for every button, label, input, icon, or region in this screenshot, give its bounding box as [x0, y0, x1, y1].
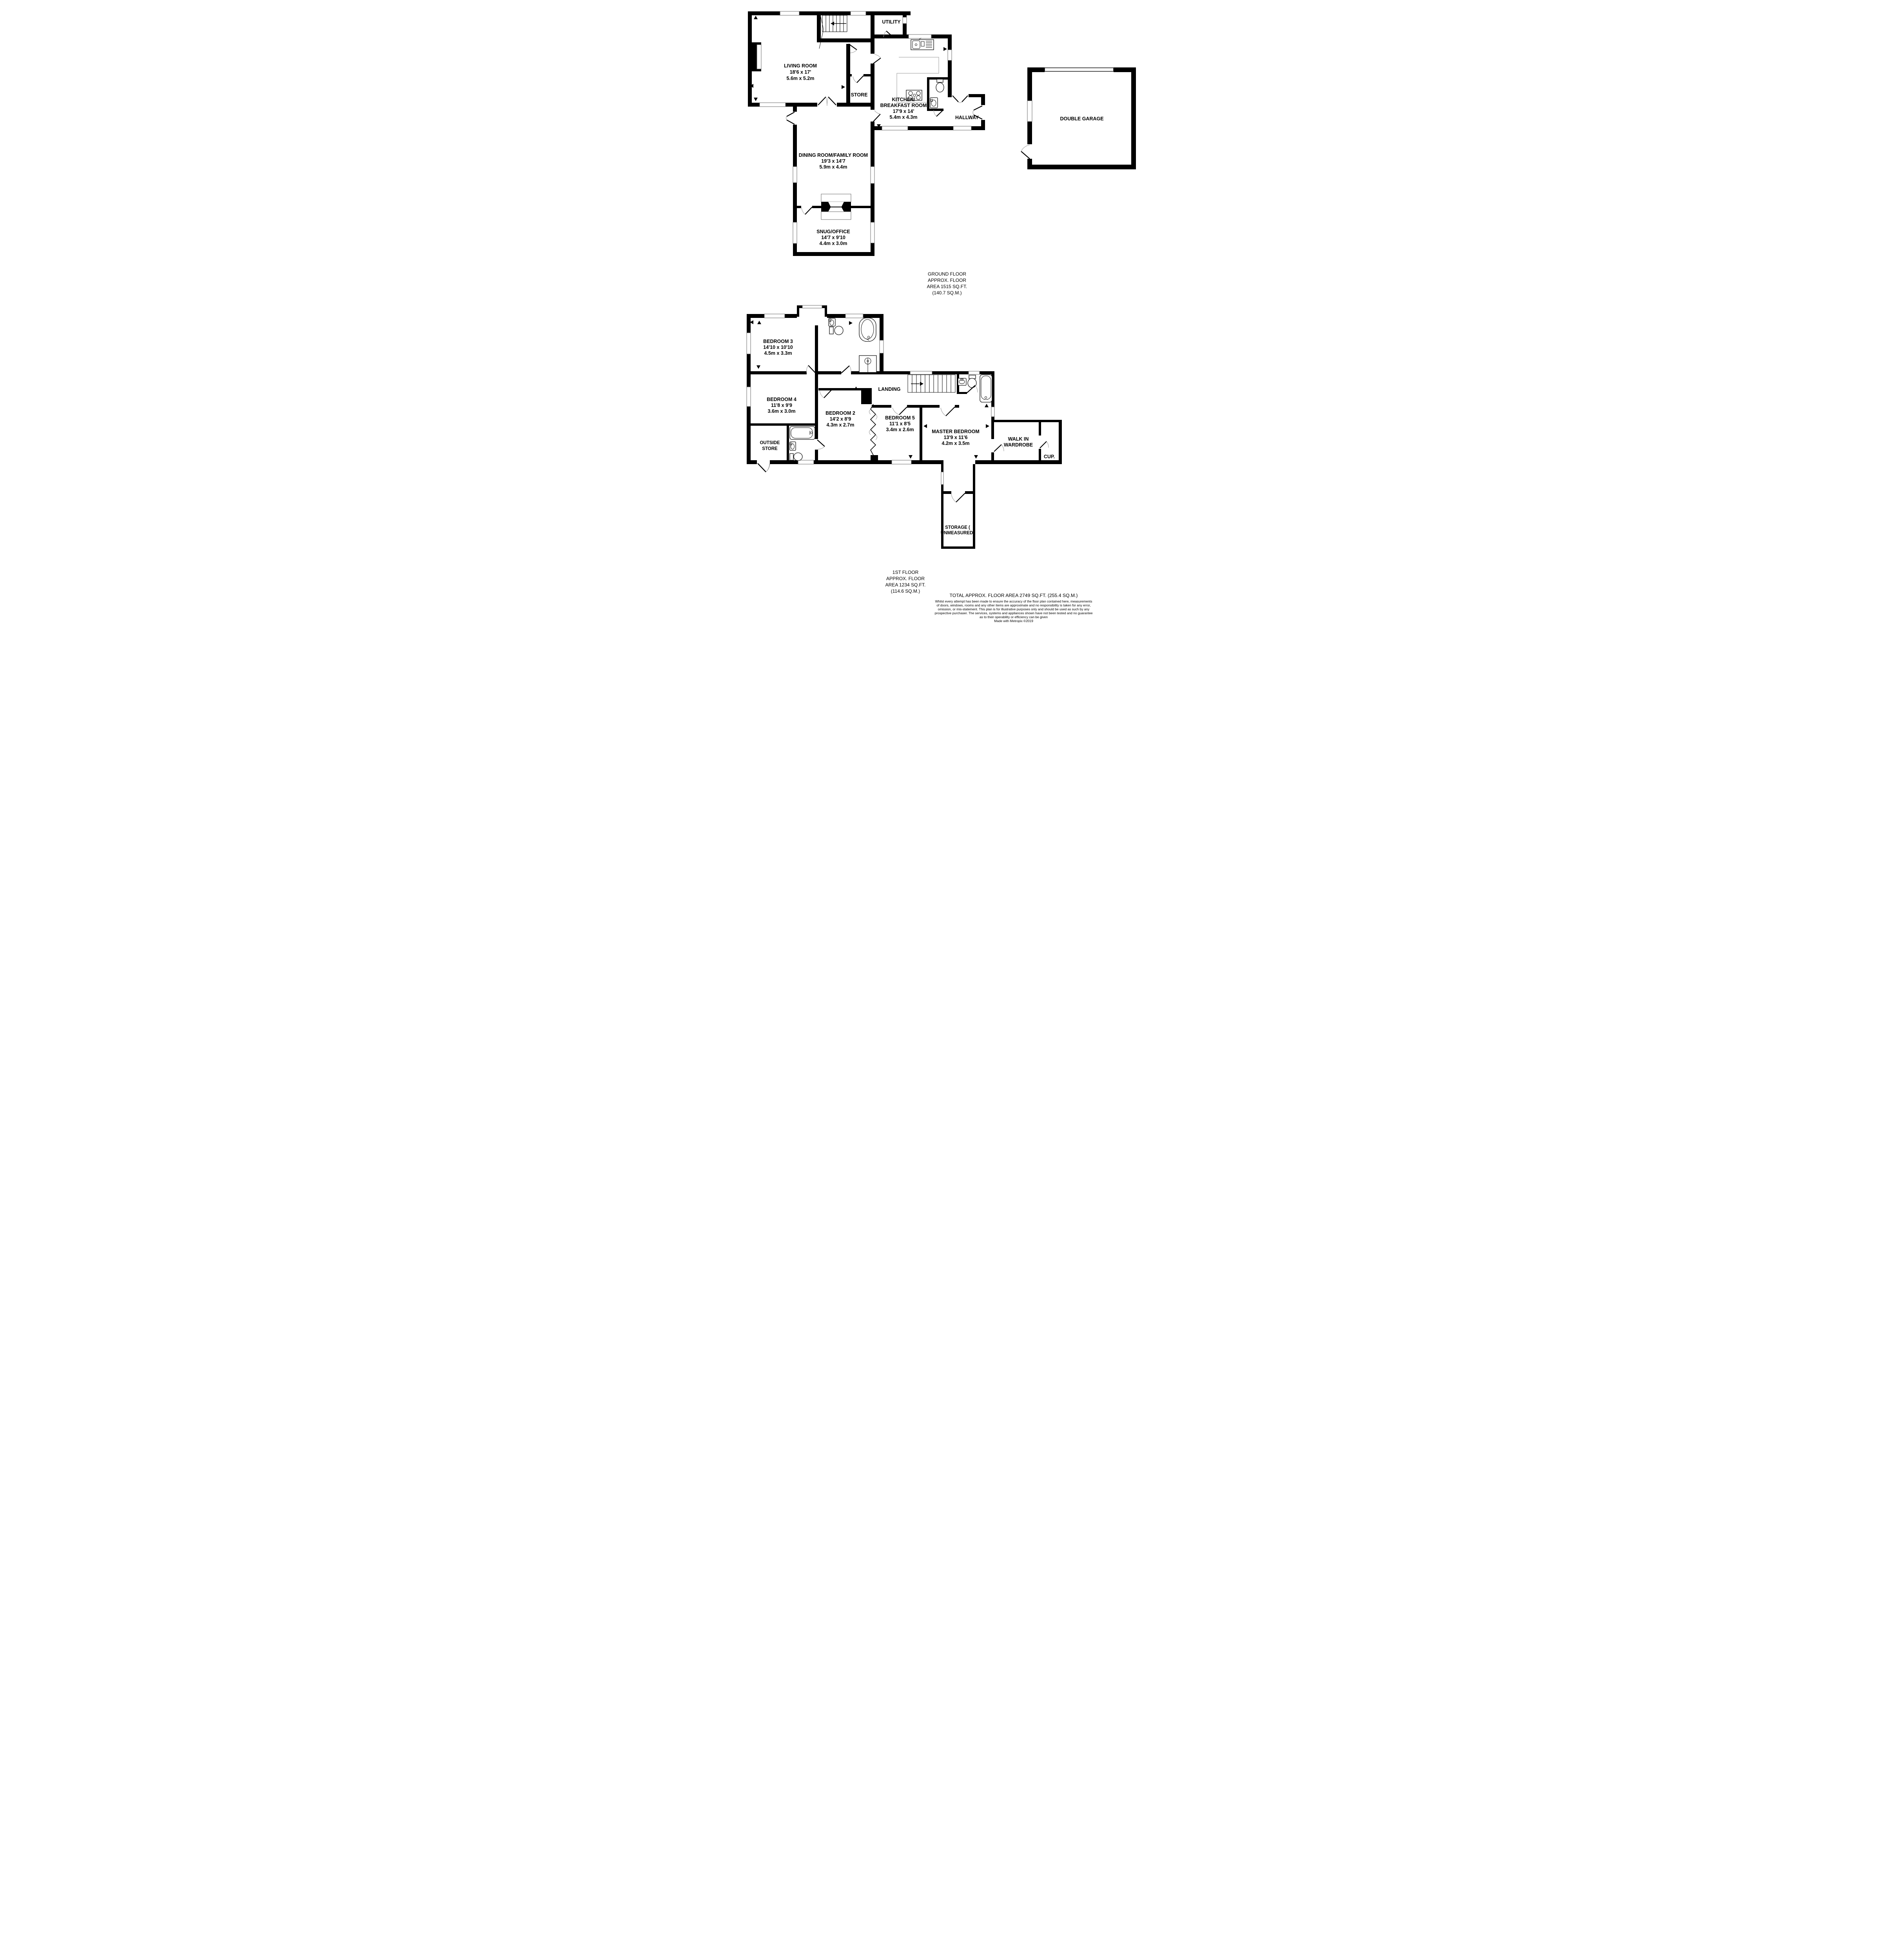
room-dims: 14'7 x 9'10 [821, 235, 845, 240]
window [798, 460, 814, 464]
window [941, 472, 943, 485]
room-label: WALK IN [1008, 436, 1029, 442]
wall [815, 325, 818, 439]
window [871, 167, 874, 183]
room-label: DOUBLE GARAGE [1060, 116, 1103, 122]
wall [816, 371, 841, 374]
wall [975, 460, 1062, 464]
wall [1039, 422, 1041, 436]
window [845, 314, 863, 318]
marker-right-icon [986, 424, 989, 428]
stairs-direction-arrow-icon [920, 382, 923, 386]
window [780, 11, 799, 15]
door [807, 365, 816, 373]
bathtub-icon [859, 318, 876, 341]
room-label: BREAKFAST ROOM [880, 103, 927, 108]
wall [817, 38, 871, 42]
shower-icon [859, 356, 876, 374]
room-label: BEDROOM 2 [825, 410, 855, 416]
wall [907, 405, 940, 408]
window [969, 371, 980, 374]
wall [927, 77, 929, 111]
ground-floor-caption: GROUND FLOOR APPROX. FLOOR AREA 1515 SQ.… [927, 271, 967, 296]
marker-right-icon [943, 47, 947, 51]
room-label: CUP. [1044, 454, 1055, 459]
wall [797, 206, 801, 208]
wall [981, 120, 985, 130]
wall [871, 38, 874, 54]
marker-down-icon [754, 98, 758, 101]
marker-left-icon [923, 424, 927, 428]
wall [846, 74, 852, 76]
toilet-icon [936, 79, 944, 92]
room-dims: 5.9m x 4.4m [820, 164, 847, 170]
room-dims: 17'9 x 14' [893, 109, 914, 114]
marker-down-icon [757, 365, 760, 369]
window [903, 17, 907, 24]
bathtub-icon [790, 426, 815, 439]
wall [991, 452, 994, 464]
room-dims: 4.4m x 3.0m [820, 241, 847, 246]
wall [851, 206, 871, 208]
room-dims: 13'9 x 11'6 [944, 435, 968, 440]
washbasin-icon [930, 98, 938, 108]
caption-line: AREA 1234 SQ.FT. [885, 582, 926, 588]
wall [957, 392, 967, 394]
door [820, 390, 832, 398]
wall [1027, 165, 1136, 169]
room-label: DINING ROOM/FAMILY ROOM [799, 152, 868, 158]
room-dims: 14'10 x 10'10 [763, 345, 793, 350]
wall [815, 450, 818, 460]
window [757, 45, 761, 69]
wall [747, 423, 815, 426]
room-dims: 19'3 x 14'7 [821, 158, 845, 164]
caption-line: APPROX. FLOOR [886, 576, 925, 581]
first-floor-plan: BEDROOM 3 14'10 x 10'10 4.5m x 3.3m BEDR… [747, 305, 1062, 549]
room-dims: 4.2m x 3.5m [942, 441, 970, 446]
garage-plan: DOUBLE GARAGE [1021, 67, 1136, 169]
wall [965, 491, 973, 494]
window [851, 11, 866, 15]
window [760, 103, 786, 107]
caption-line: (140.7 SQ.M.) [932, 290, 962, 296]
disclaimer-line: prospective purchaser. The services, sys… [934, 611, 1092, 615]
room-label: BEDROOM 3 [763, 339, 793, 344]
wall [864, 74, 871, 76]
toilet-icon [790, 453, 802, 461]
caption-line: (114.6 SQ.M.) [891, 588, 920, 594]
caption-line: AREA 1515 SQ.FT. [927, 284, 967, 289]
door [841, 366, 851, 373]
window [802, 305, 822, 308]
room-dims: 3.6m x 3.0m [768, 408, 796, 414]
window [991, 407, 994, 417]
wall [973, 464, 975, 549]
floor-plan-svg: LIVING ROOM 18'6 x 17' 5.6m x 5.2m UTILI… [735, 0, 1159, 623]
door [994, 445, 1004, 452]
garage-door [1045, 68, 1114, 71]
door [853, 76, 864, 83]
wall [948, 34, 952, 94]
stairs-direction-arrow-icon [831, 22, 834, 25]
toilet-icon [829, 326, 843, 335]
wall [981, 94, 985, 105]
marker-up-icon [757, 321, 761, 324]
door [817, 440, 825, 449]
room-label: BEDROOM 4 [767, 397, 796, 402]
wall [955, 405, 959, 408]
door-opening [757, 460, 770, 464]
wall [747, 460, 943, 464]
window [793, 167, 797, 183]
wall [941, 546, 975, 549]
ground-floor-plan: LIVING ROOM 18'6 x 17' 5.6m x 5.2m UTILI… [748, 11, 985, 256]
door [893, 407, 907, 415]
window [1027, 101, 1032, 122]
wall [871, 64, 874, 110]
window [871, 222, 874, 243]
room-label: LIVING ROOM [784, 63, 817, 69]
room-dims: 11'1 x 8'5 [889, 421, 911, 426]
room-dims: 4.5m x 3.3m [764, 350, 792, 356]
door-opening [793, 112, 797, 125]
room-dims: 11'8 x 9'9 [771, 403, 792, 408]
wall [872, 405, 891, 408]
washbasin-icon [790, 442, 796, 450]
room-label: BEDROOM 5 [885, 415, 915, 421]
staircase [819, 14, 847, 49]
window [948, 50, 952, 60]
disclaimer-line: of doors, windows, rooms and any other i… [936, 603, 1090, 607]
disclaimer-line: omission, or mis-statement. This plan is… [938, 607, 1090, 611]
wall [861, 388, 872, 404]
wall [948, 94, 952, 97]
window [880, 340, 884, 353]
room-dims: 14'2 x 8'9 [830, 416, 851, 422]
wall [1039, 449, 1041, 464]
room-label: HALLWAY [955, 115, 979, 120]
door [1021, 145, 1030, 159]
fireplace-icon [821, 194, 851, 220]
wall [748, 11, 911, 15]
room-label: SNUG/OFFICE [816, 229, 850, 234]
bathtub-icon [980, 375, 992, 402]
room-label: LANDING [878, 387, 901, 392]
marker-right-icon [849, 321, 853, 325]
room-label: STORE [762, 446, 778, 451]
wall [927, 109, 943, 111]
wall [871, 122, 874, 126]
wall [787, 426, 789, 460]
room-dims: 3.4m x 2.6m [886, 427, 914, 432]
door [758, 463, 769, 472]
window [747, 387, 751, 407]
room-dims: 5.4m x 4.3m [890, 114, 918, 120]
room-label: MASTER BEDROOM [932, 429, 980, 434]
room-label: STORE [851, 92, 868, 98]
staircase [908, 375, 955, 392]
wall [871, 11, 874, 34]
marker-up-icon [754, 16, 758, 19]
first-floor-caption: 1ST FLOOR APPROX. FLOOR AREA 1234 SQ.FT.… [885, 570, 926, 594]
window [953, 126, 971, 130]
window [910, 371, 932, 374]
room-label: OUTSIDE [760, 441, 780, 445]
door [1040, 441, 1049, 448]
metropix-credit: Made with Metropix ©2019 [994, 619, 1033, 623]
washbasin-icon [958, 378, 966, 385]
marker-up-icon [985, 404, 989, 407]
disclaimer-line: as to their operability or efficiency ca… [980, 615, 1048, 619]
window [764, 314, 785, 318]
room-dims: 5.6m x 5.2m [787, 76, 815, 81]
wall [825, 305, 827, 317]
disclaimer-line: Whilst every attempt has been made to en… [935, 599, 1092, 603]
marker-down-icon [909, 455, 913, 459]
wall [920, 408, 922, 460]
room-label: WARDROBE [1004, 442, 1033, 448]
window [793, 222, 797, 243]
wall [812, 206, 821, 208]
washbasin-icon [829, 318, 835, 326]
marker-down-icon [974, 455, 978, 459]
wall [991, 422, 994, 439]
double-door [952, 96, 968, 103]
wall [871, 455, 878, 460]
total-area-line: TOTAL APPROX. FLOOR AREA 2749 SQ.FT. (25… [950, 593, 1078, 598]
room-label: UTILITY [882, 19, 901, 25]
caption-line: 1ST FLOOR [893, 570, 919, 575]
window [909, 34, 931, 38]
window [747, 333, 751, 354]
caption-line: APPROX. FLOOR [928, 278, 966, 283]
room-dims: 4.3m x 2.7m [827, 422, 854, 428]
wall [943, 491, 951, 494]
room-dims: 18'6 x 17' [790, 69, 811, 75]
door [941, 407, 955, 416]
room-label: KITCHEN/ [892, 97, 915, 102]
window [892, 460, 911, 464]
wall [903, 11, 907, 38]
bifold-wardrobe-doors [871, 404, 876, 455]
wall [817, 11, 821, 42]
door [951, 493, 965, 502]
room-label: STORAGE ( [945, 525, 970, 530]
marker-right-icon [842, 85, 845, 89]
wall [793, 252, 874, 256]
floorplan-page: LIVING ROOM 18'6 x 17' 5.6m x 5.2m UTILI… [735, 0, 1159, 623]
caption-line: GROUND FLOOR [928, 271, 966, 277]
wall [1131, 67, 1136, 169]
summary-block: TOTAL APPROX. FLOOR AREA 2749 SQ.FT. (25… [934, 593, 1092, 623]
door [873, 111, 880, 122]
door [873, 54, 881, 64]
wall [991, 420, 1062, 422]
kitchen-sink-icon [911, 38, 934, 50]
window [882, 126, 908, 130]
wall [846, 44, 850, 103]
door [802, 207, 812, 214]
room-label: UNMEASURED) [941, 531, 974, 535]
wall [1059, 420, 1062, 464]
wall [747, 371, 807, 374]
